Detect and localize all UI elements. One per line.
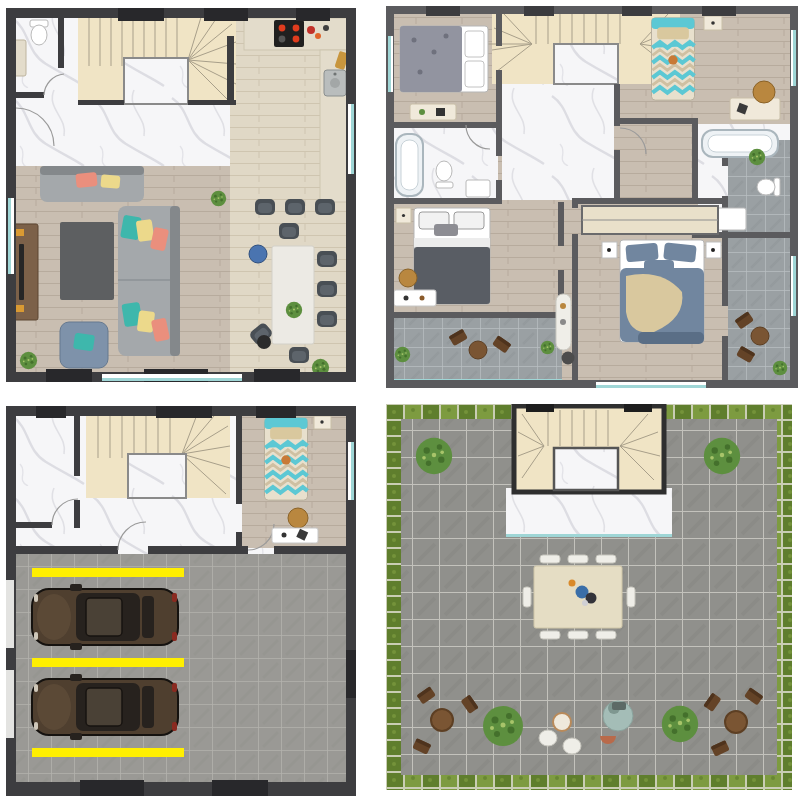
first-floor-plan bbox=[386, 6, 798, 388]
white-chair bbox=[596, 555, 616, 563]
dining-table bbox=[272, 246, 314, 344]
toilet bbox=[30, 20, 48, 45]
bar-stools bbox=[255, 199, 335, 215]
table-plant bbox=[286, 302, 302, 318]
parking-stripe bbox=[32, 748, 184, 757]
desk bbox=[410, 104, 456, 120]
parking-stripe bbox=[32, 568, 184, 577]
plant bbox=[20, 352, 37, 369]
dining-chair bbox=[317, 251, 337, 267]
toilet bbox=[436, 161, 453, 188]
landing-hall-marble bbox=[502, 84, 614, 200]
side-table bbox=[394, 290, 436, 306]
garage-door bbox=[6, 580, 14, 648]
tv-unit bbox=[14, 224, 38, 320]
bistro-table bbox=[469, 341, 487, 359]
basket bbox=[399, 269, 417, 287]
round-bush bbox=[662, 706, 698, 742]
coffee-table-rug bbox=[60, 222, 114, 300]
plant bbox=[749, 149, 765, 165]
single-bed bbox=[265, 418, 308, 500]
stair-landing bbox=[554, 448, 618, 490]
master-bed bbox=[620, 240, 704, 344]
armchair bbox=[60, 322, 108, 368]
stair-bulkhead bbox=[506, 404, 672, 537]
stair-landing bbox=[128, 454, 186, 498]
white-chair bbox=[627, 587, 635, 607]
garage-door bbox=[6, 670, 14, 738]
sink bbox=[466, 180, 490, 197]
dining-chair bbox=[289, 347, 309, 363]
round-bush bbox=[416, 438, 452, 474]
floor-plan-sheet bbox=[0, 0, 800, 800]
window bbox=[102, 374, 242, 378]
white-chair bbox=[523, 587, 531, 607]
marble-apron bbox=[506, 488, 672, 536]
basket bbox=[288, 508, 308, 528]
blue-stool bbox=[249, 245, 267, 263]
white-chair bbox=[540, 631, 560, 639]
plant bbox=[395, 347, 410, 362]
roof-terrace-plan bbox=[386, 404, 792, 790]
round-bush bbox=[483, 706, 523, 746]
l-shaped-sofa bbox=[118, 206, 180, 356]
garage bbox=[32, 568, 184, 757]
stair-landing bbox=[554, 44, 618, 84]
white-chair bbox=[540, 555, 560, 563]
ground-floor-plan bbox=[6, 8, 356, 382]
plant bbox=[773, 361, 788, 376]
round-stool bbox=[562, 352, 575, 365]
outdoor-dining-set bbox=[523, 555, 635, 639]
single-bed bbox=[652, 18, 695, 100]
guest-desk bbox=[272, 528, 318, 543]
dining-chair bbox=[317, 311, 337, 327]
car bbox=[32, 674, 178, 740]
white-chair bbox=[568, 631, 588, 639]
white-chair bbox=[596, 631, 616, 639]
cooktop bbox=[274, 20, 304, 47]
sofa bbox=[40, 166, 144, 202]
round-bush bbox=[704, 438, 740, 474]
parking-stripe bbox=[32, 658, 184, 667]
white-chair bbox=[568, 555, 588, 563]
plant bbox=[541, 341, 555, 355]
kitchen-sink bbox=[324, 70, 346, 96]
staircase bbox=[78, 14, 236, 105]
side-terrace-floor bbox=[728, 140, 792, 382]
car bbox=[32, 584, 178, 650]
stair-landing bbox=[124, 58, 188, 104]
bistro-table bbox=[751, 327, 769, 345]
floor-vase bbox=[257, 335, 271, 349]
plant bbox=[211, 191, 226, 206]
basket bbox=[753, 81, 775, 103]
garage-level-plan bbox=[6, 406, 356, 796]
dining-chair bbox=[317, 281, 337, 297]
dining-chair bbox=[279, 223, 299, 239]
staircase bbox=[86, 412, 230, 498]
double-bed bbox=[400, 26, 488, 92]
toilet bbox=[757, 178, 780, 196]
